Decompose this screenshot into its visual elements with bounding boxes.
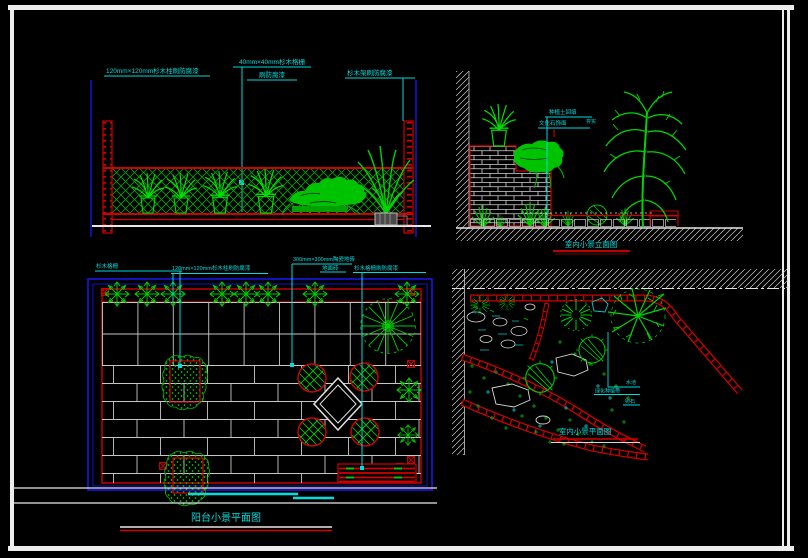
wall-top-potted-plant [482, 104, 516, 146]
wall-note-label: 文化石饰面 [539, 119, 567, 127]
indoor-elevation-title: 室内小景立面图 [565, 239, 618, 249]
balcony-plan-title-block: 阳台小景平面图 [120, 511, 332, 531]
indoor-plan-title: 室内小景平面图 [559, 426, 612, 436]
wall-section-hatch [456, 71, 469, 229]
left-post [103, 121, 112, 233]
indoor-elevation-drawing: 种植土回填 夯实 文化石饰面 室内小景立面图 [456, 71, 743, 254]
tile-sub-label: 地面砖 [322, 264, 339, 272]
left-wall-hatch [452, 269, 464, 455]
tile-dim-label: 300mm×300mm陶瓷地砖 [293, 255, 355, 263]
post-dimension-label: 120mm×120mm杉木柱刷防腐漆 [106, 66, 199, 75]
pebble-label: 卵石 [625, 398, 635, 405]
cad-sheet-canvas: 120mm×120mm杉木柱刷防腐漆 40mm×40mm杉木格栅 刷防腐漆 杉木… [0, 0, 808, 558]
round-shrub-a [576, 334, 608, 366]
balcony-plan-drawing: 杉木格栅 120mm×120mm杉木柱刷防腐漆 300mm×300mm陶瓷地砖 … [13, 255, 437, 531]
rock-outlines [492, 298, 608, 424]
indoor-elevation-title-block: 室内小景立面图 [553, 239, 630, 254]
pool-label: 水池 [626, 379, 636, 386]
indoor-plan-drawing: 水池 绿化种植带 卵石 室内小景平面图 [452, 269, 788, 457]
plan-post-dim-label: 120mm×120mm杉木柱刷防腐漆 [172, 264, 251, 272]
plant-pot [375, 213, 397, 225]
frame-paint-label: 杉木架刷防腐漆 [347, 68, 393, 77]
grid-dimension-label: 40mm×40mm杉木格栅 [239, 57, 305, 66]
bench [338, 464, 416, 483]
drawing-sheet: 120mm×120mm杉木柱刷防腐漆 40mm×40mm杉木格栅 刷防腐漆 杉木… [0, 0, 808, 558]
large-radial-plant [361, 299, 416, 354]
grid-paint-label: 刷防腐漆 [259, 70, 286, 79]
lattice-note-label: 杉木格栅 [96, 262, 119, 270]
planting-label: 绿化种植带 [595, 388, 620, 395]
top-wall-hatch [458, 269, 788, 288]
soil-note-label: 种植土回填 [549, 108, 577, 116]
balcony-elevation-drawing: 120mm×120mm杉木柱刷防腐漆 40mm×40mm杉木格栅 刷防腐漆 杉木… [91, 57, 431, 237]
lattice-paint-label: 杉木格栅刷防腐漆 [354, 264, 399, 272]
balcony-plan-title: 阳台小景平面图 [191, 511, 261, 524]
large-tree [604, 91, 686, 227]
soil-sub-note-label: 夯实 [586, 118, 596, 125]
water-feature-bed [467, 294, 535, 350]
fuzzy-shrub [560, 299, 591, 330]
